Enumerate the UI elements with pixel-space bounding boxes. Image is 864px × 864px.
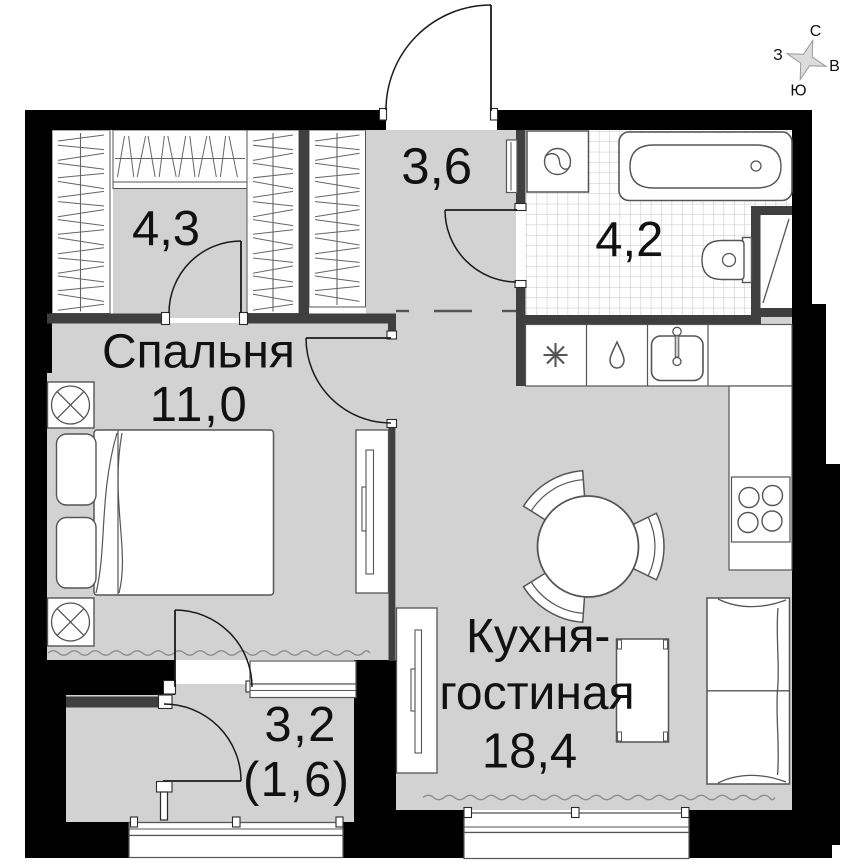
svg-text:4,2: 4,2: [595, 213, 663, 267]
svg-text:3,6: 3,6: [401, 138, 472, 195]
svg-text:4,3: 4,3: [132, 202, 200, 256]
svg-text:В: В: [829, 58, 840, 75]
svg-text:Ю: Ю: [790, 83, 806, 100]
svg-text:11,0: 11,0: [150, 378, 247, 432]
svg-text:(1,6): (1,6): [243, 753, 349, 807]
svg-text:С: С: [810, 23, 822, 40]
svg-text:Кухня-: Кухня-: [466, 610, 610, 663]
svg-text:З: З: [773, 47, 783, 64]
svg-text:гостиная: гостиная: [439, 667, 634, 720]
svg-text:Спальня: Спальня: [102, 326, 295, 379]
svg-text:18,4: 18,4: [482, 725, 577, 779]
svg-text:3,2: 3,2: [264, 698, 335, 752]
